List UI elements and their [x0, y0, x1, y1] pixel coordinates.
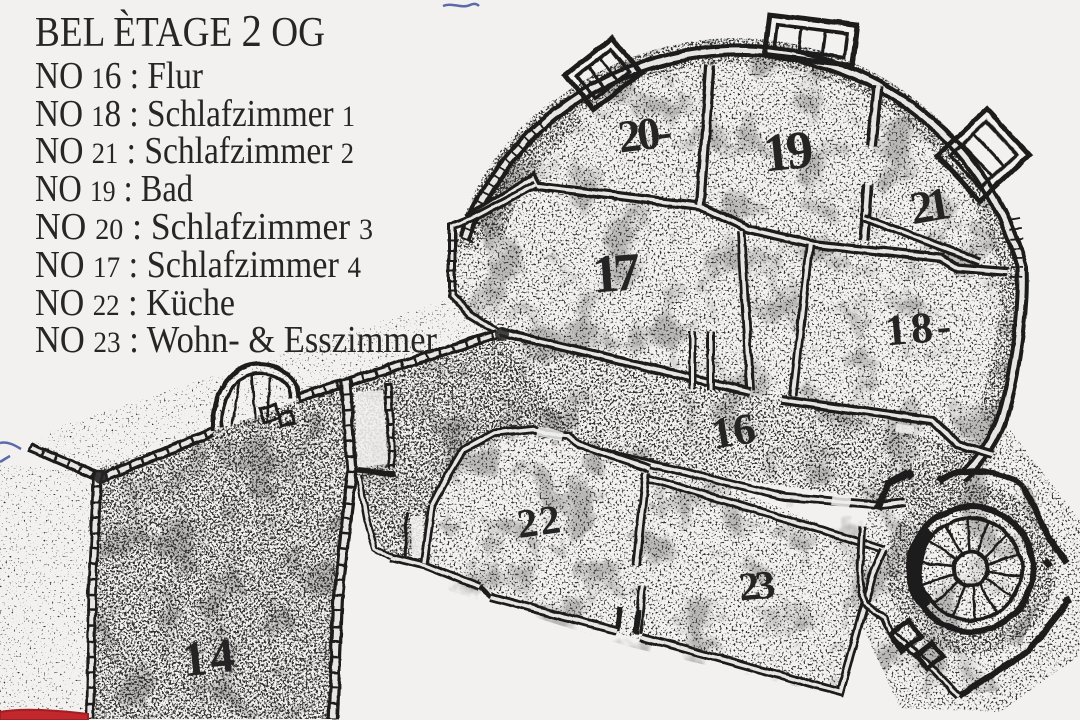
svg-text:NO 17 : Schlafzimmer 4: NO 17 : Schlafzimmer 4	[35, 244, 361, 286]
svg-text:NO 19 : Bad: NO 19 : Bad	[35, 168, 193, 210]
svg-text:NO 20 : Schlafzimmer 3: NO 20 : Schlafzimmer 3	[35, 206, 373, 248]
svg-text:NO 21 : Schlafzimmer 2: NO 21 : Schlafzimmer 2	[35, 130, 354, 172]
svg-text:NO 16 : Flur: NO 16 : Flur	[35, 55, 203, 97]
svg-text:NO 23 : Wohn- & Esszimmer: NO 23 : Wohn- & Esszimmer	[35, 319, 437, 361]
svg-text:NO 22 : Küche: NO 22 : Küche	[35, 282, 235, 324]
svg-text:17: 17	[590, 241, 642, 304]
svg-text:BEL ÈTAGE 2 OG: BEL ÈTAGE 2 OG	[35, 5, 325, 56]
svg-text:NO 18 : Schlafzimmer 1: NO 18 : Schlafzimmer 1	[35, 93, 355, 135]
svg-text:18-: 18-	[883, 301, 953, 356]
svg-text:19: 19	[760, 119, 816, 184]
svg-text:16: 16	[708, 403, 759, 458]
svg-text:20-: 20-	[615, 105, 675, 162]
svg-text:23: 23	[737, 562, 777, 610]
